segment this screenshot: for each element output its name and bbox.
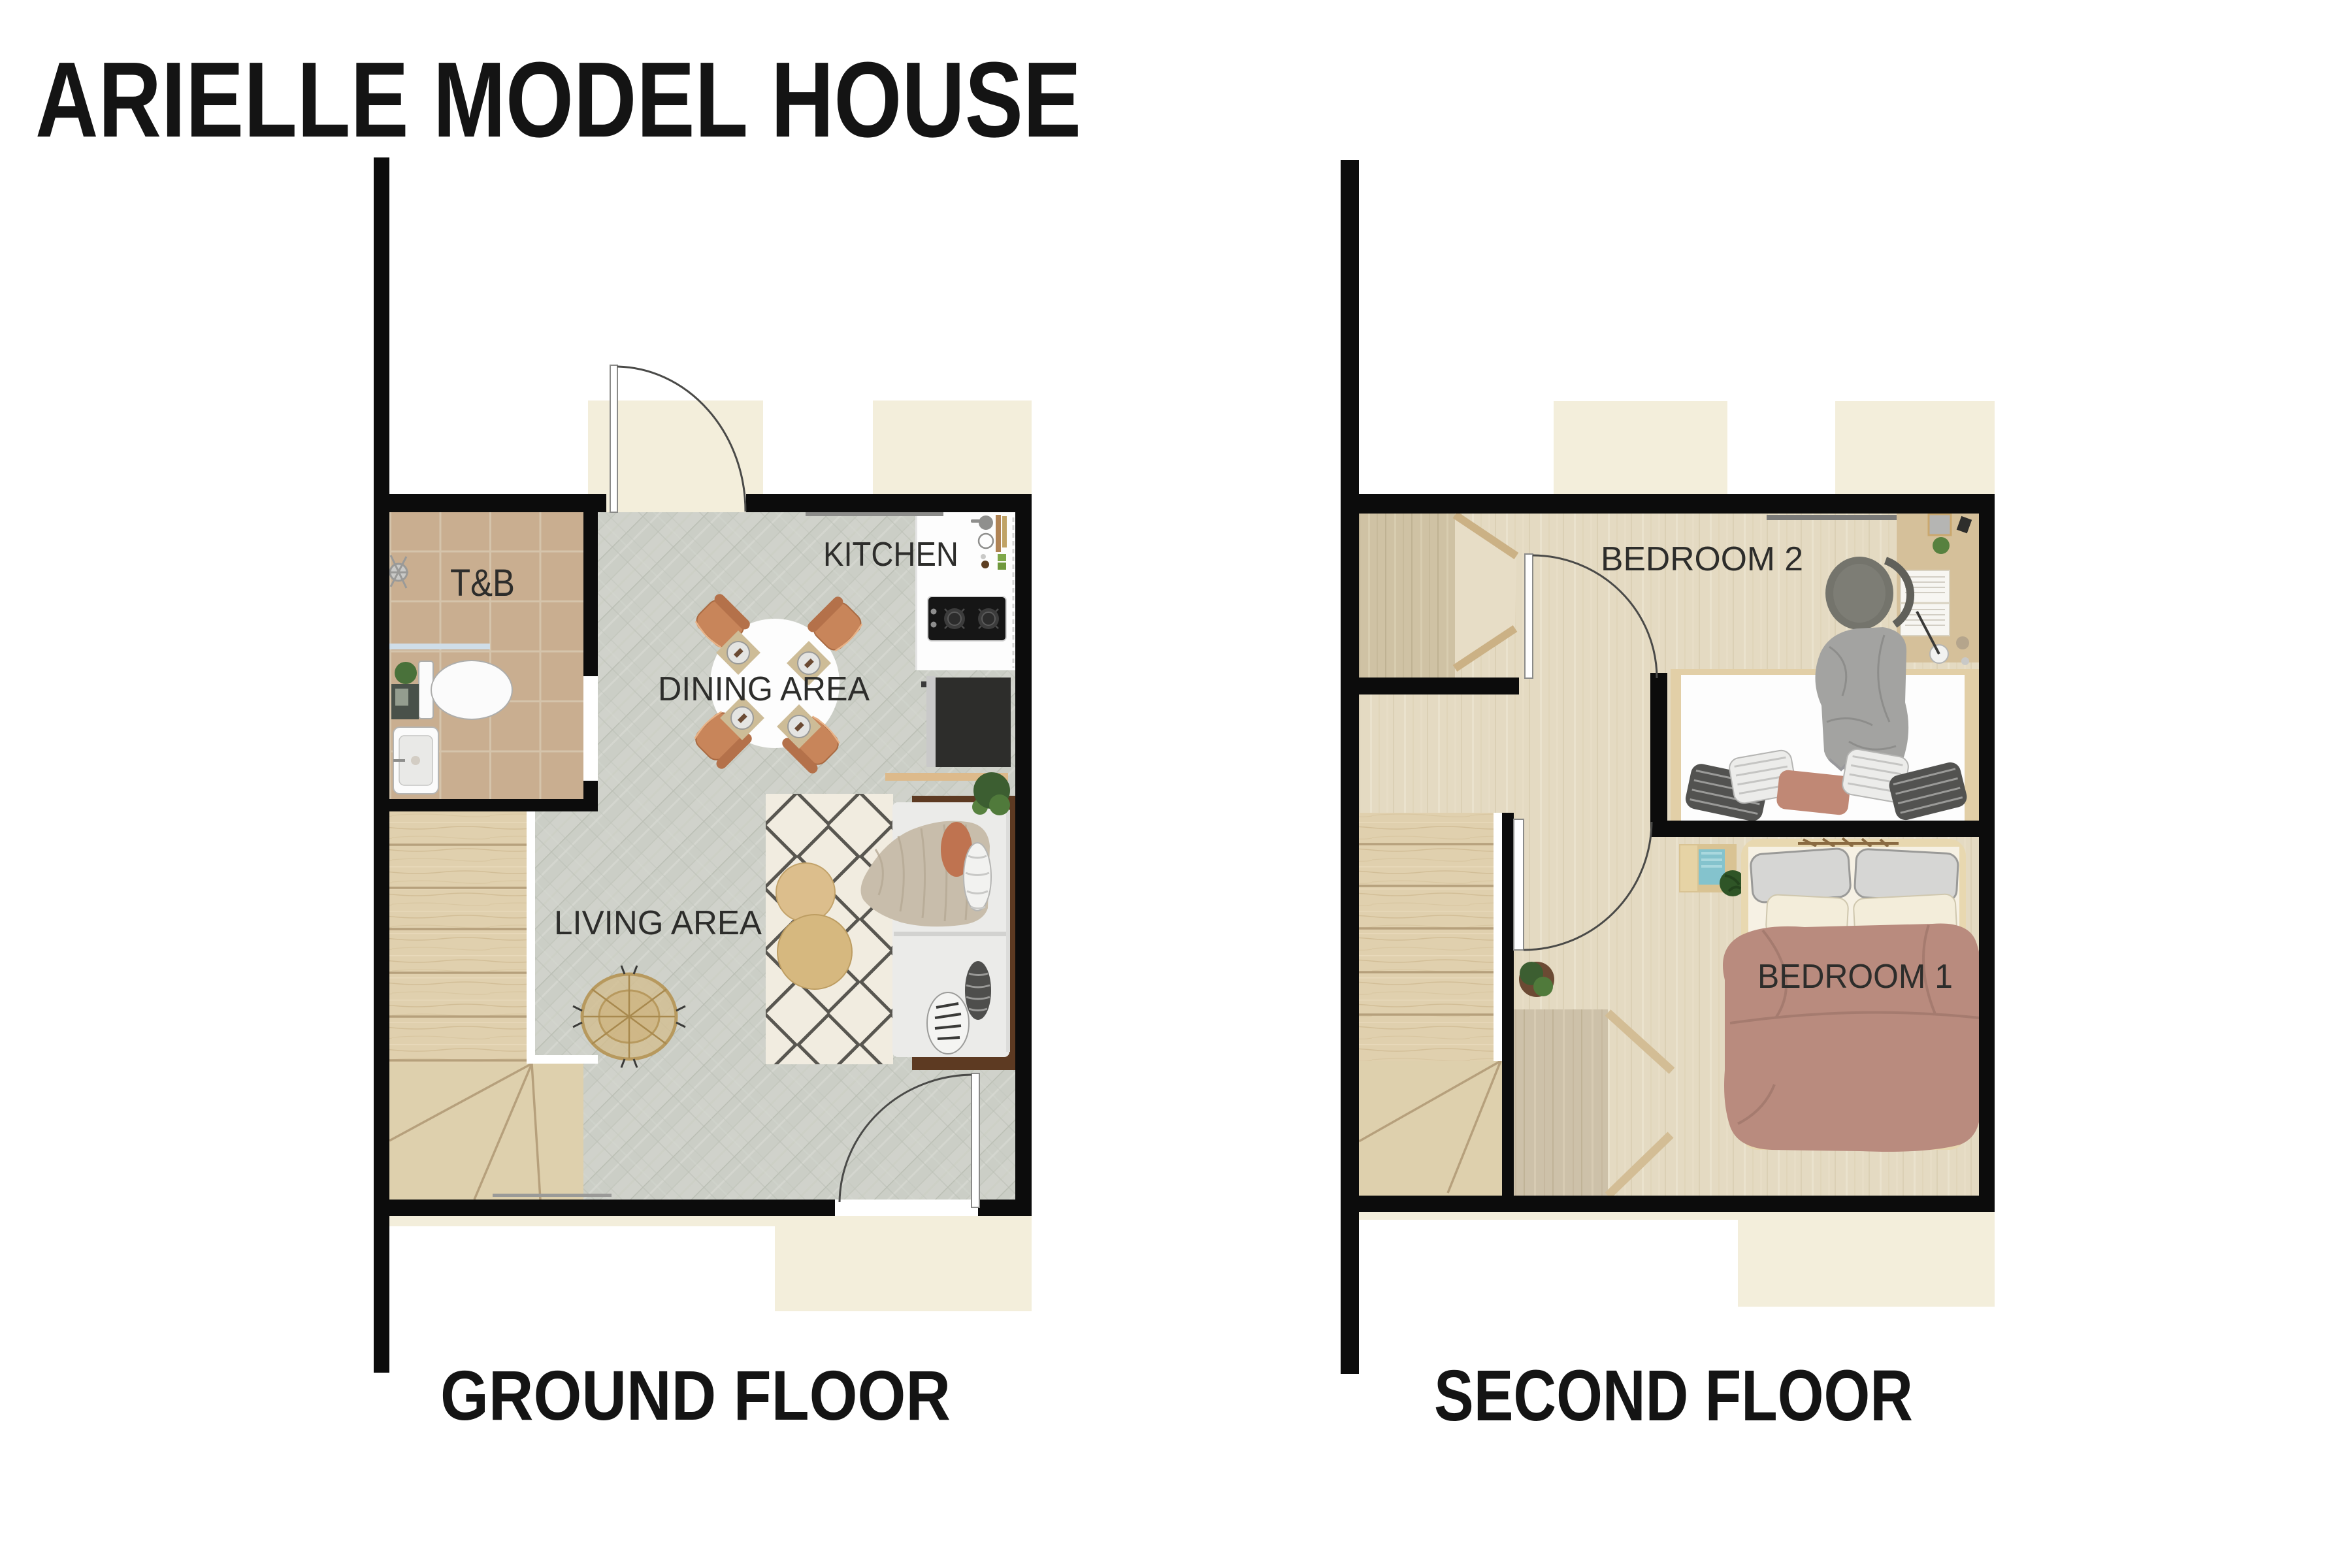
svg-text:DINING AREA: DINING AREA [658, 670, 870, 708]
svg-text:T&B: T&B [450, 562, 515, 604]
svg-text:GROUND FLOOR: GROUND FLOOR [440, 1356, 951, 1435]
svg-text:KITCHEN: KITCHEN [823, 536, 958, 574]
svg-text:BEDROOM 1: BEDROOM 1 [1757, 958, 1953, 996]
svg-text:SECOND FLOOR: SECOND FLOOR [1434, 1356, 1913, 1436]
svg-text:LIVING AREA: LIVING AREA [554, 904, 762, 942]
svg-text:ARIELLE MODEL HOUSE: ARIELLE MODEL HOUSE [35, 40, 1081, 159]
svg-text:BEDROOM 2: BEDROOM 2 [1601, 540, 1803, 578]
